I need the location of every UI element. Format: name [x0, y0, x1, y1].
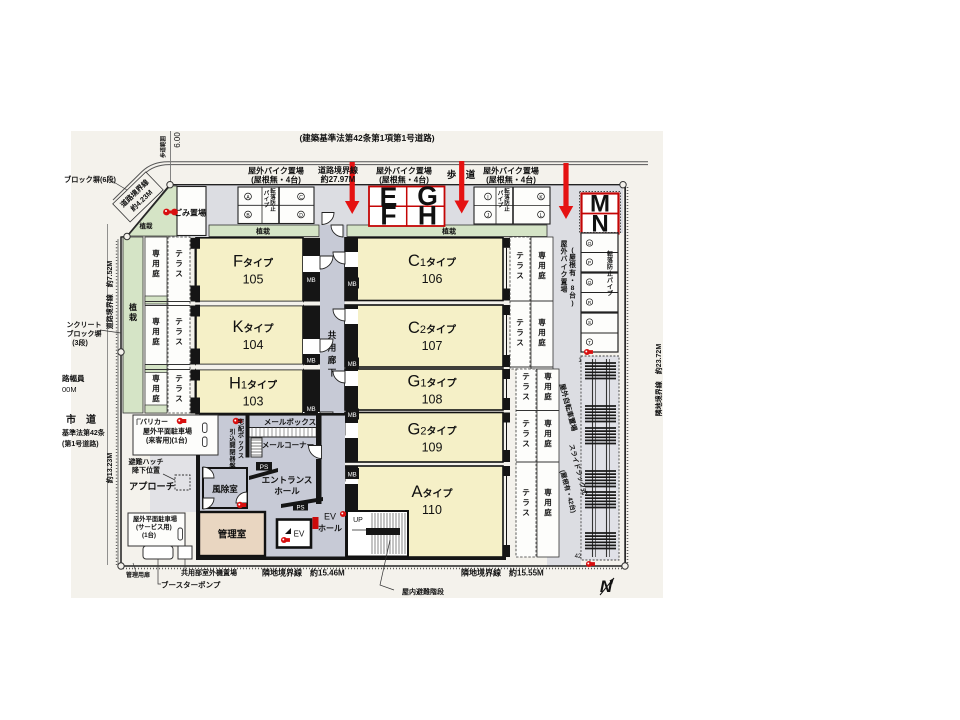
svg-text:ホール: ホール [274, 486, 300, 496]
svg-text:O: O [588, 241, 592, 247]
svg-text:メールボックス: メールボックス [264, 417, 316, 427]
svg-text:107: 107 [422, 339, 443, 353]
svg-text:PS: PS [260, 464, 269, 471]
svg-text:(屋根無・4台): (屋根無・4台) [251, 175, 301, 185]
svg-text:隣地境界線 約23.72M: 隣地境界線 約23.72M [654, 344, 663, 417]
svg-text:H: H [418, 201, 437, 231]
svg-text:約13.23M: 約13.23M [105, 453, 114, 484]
svg-text:屋外バイク置場: 屋外バイク置場 [561, 239, 568, 294]
svg-text:植栽: 植栽 [139, 221, 154, 230]
svg-text:テラス: テラス [175, 317, 183, 346]
svg-text:テラス: テラス [522, 419, 530, 448]
svg-text:路幅員: 路幅員 [62, 373, 85, 383]
svg-text:バリカー: バリカー [140, 418, 168, 426]
svg-text:UP: UP [353, 517, 363, 524]
svg-text:(屋根有・8台): (屋根有・8台) [569, 247, 576, 307]
svg-text:屋外バイク置場: 屋外バイク置場 [248, 166, 304, 176]
svg-text:隣地境界線 約15.46M: 隣地境界線 約15.46M [262, 568, 345, 578]
svg-text:風除室: 風除室 [212, 484, 238, 494]
svg-text:テラス: テラス [516, 251, 524, 280]
svg-text:管理室: 管理室 [218, 529, 247, 541]
svg-text:テラス: テラス [175, 374, 183, 403]
svg-text:転落防止: 転落防止 [270, 187, 276, 213]
svg-text:専用庭: 専用庭 [152, 316, 160, 346]
svg-text:専用庭: 専用庭 [544, 371, 552, 401]
svg-text:MB: MB [307, 358, 316, 364]
svg-text:パイプ: パイプ [264, 189, 270, 209]
svg-text:専用庭: 専用庭 [152, 248, 160, 278]
svg-text:ンクリート: ンクリート [67, 320, 102, 329]
svg-text:管理用扉: 管理用扉 [126, 571, 150, 579]
svg-text:基準法第42条: 基準法第42条 [61, 428, 106, 437]
svg-text:L: L [540, 213, 543, 219]
svg-text:S: S [588, 320, 591, 326]
svg-text:屋外平面駐車場: 屋外平面駐車場 [133, 514, 178, 523]
svg-text:植栽: 植栽 [255, 227, 270, 236]
svg-text:Q: Q [588, 280, 592, 286]
svg-text:テラス: テラス [522, 372, 530, 401]
svg-text:ホール: ホール [318, 524, 342, 533]
svg-text:I: I [487, 195, 488, 201]
svg-text:(屋根無・4台): (屋根無・4台) [379, 175, 429, 185]
svg-text:転落防止パイプ: 転落防止パイプ [607, 250, 614, 298]
svg-text:109: 109 [422, 440, 443, 454]
svg-text:T: T [588, 340, 591, 346]
svg-text:屋内避難階段: 屋内避難階段 [402, 587, 444, 596]
svg-text:転落防止: 転落防止 [504, 187, 510, 213]
svg-text:専用庭: 専用庭 [544, 487, 552, 517]
svg-text:市 道: 市 道 [66, 413, 96, 426]
svg-text:(第1号道路): (第1号道路) [62, 439, 99, 448]
svg-text:パイプ: パイプ [498, 189, 504, 209]
svg-text:00M: 00M [62, 385, 77, 394]
svg-text:MB: MB [307, 278, 316, 284]
svg-text:歩道範囲: 歩道範囲 [159, 136, 167, 159]
svg-text:道路境界線: 道路境界線 [318, 165, 358, 175]
svg-text:宅配ボックス: 宅配ボックス [238, 418, 245, 460]
svg-text:テラス: テラス [175, 249, 183, 278]
svg-text:ごみ置場: ごみ置場 [174, 208, 206, 218]
svg-text:専用庭: 専用庭 [544, 418, 552, 448]
svg-text:104: 104 [243, 338, 264, 352]
svg-text:(サービス用): (サービス用) [136, 522, 172, 531]
svg-text:専用庭: 専用庭 [152, 373, 160, 403]
svg-text:隣地境界線 約15.55M: 隣地境界線 約15.55M [461, 568, 544, 578]
svg-text:F: F [380, 201, 396, 231]
svg-text:EV: EV [294, 530, 305, 539]
svg-text:道路境界線 約7.52M: 道路境界線 約7.52M [105, 261, 114, 330]
svg-text:108: 108 [422, 393, 443, 407]
svg-text:6.00: 6.00 [173, 132, 182, 148]
svg-text:MB: MB [348, 413, 357, 419]
svg-text:110: 110 [422, 503, 442, 517]
svg-text:屋外バイク置場: 屋外バイク置場 [483, 166, 539, 176]
svg-text:42: 42 [575, 554, 582, 560]
svg-text:EV: EV [324, 512, 336, 522]
svg-text:屋外バイク置場: 屋外バイク置場 [376, 166, 432, 176]
svg-text:約27.97M: 約27.97M [321, 174, 356, 184]
svg-text:植栽: 植栽 [441, 227, 456, 236]
svg-text:(3段): (3段) [72, 338, 88, 347]
svg-text:PS: PS [296, 506, 304, 512]
svg-text:アプローチ: アプローチ [129, 481, 175, 492]
svg-text:R: R [588, 300, 592, 306]
svg-text:(1台): (1台) [142, 530, 156, 539]
svg-text:歩 道: 歩 道 [447, 169, 476, 181]
svg-text:降下位置: 降下位置 [132, 466, 160, 475]
svg-text:(屋根無・4台): (屋根無・4台) [486, 175, 536, 185]
svg-text:105: 105 [243, 273, 264, 287]
svg-text:テラス: テラス [522, 488, 530, 517]
svg-text:MB: MB [348, 472, 357, 478]
svg-text:MB: MB [307, 407, 316, 413]
svg-text:エントランス: エントランス [262, 475, 313, 485]
svg-text:(建築基準法第42条第1項第1号道路): (建築基準法第42条第1項第1号道路) [299, 133, 434, 143]
svg-text:共用部室外機置場: 共用部室外機置場 [181, 568, 237, 577]
svg-text:テラス: テラス [516, 318, 524, 347]
svg-text:専用庭: 専用庭 [538, 317, 546, 347]
svg-text:引込開閉器盤: 引込開閉器盤 [228, 428, 236, 470]
svg-text:C: C [299, 195, 303, 201]
svg-text:屋外平面駐車場: 屋外平面駐車場 [143, 427, 192, 436]
svg-text:専用庭: 専用庭 [538, 250, 546, 280]
svg-text:メールコーナー: メールコーナー [262, 441, 314, 450]
svg-text:避難ハッチ: 避難ハッチ [128, 457, 164, 466]
svg-text:106: 106 [422, 272, 443, 286]
svg-text:(来客用)(1台): (来客用)(1台) [146, 436, 187, 445]
svg-text:D: D [299, 213, 303, 219]
svg-text:103: 103 [243, 395, 264, 409]
svg-text:MB: MB [348, 362, 357, 368]
svg-text:P: P [588, 260, 591, 266]
svg-text:ブロック塀(6段): ブロック塀(6段) [64, 175, 117, 184]
svg-text:ブロック塀: ブロック塀 [67, 329, 102, 338]
svg-text:MB: MB [348, 282, 357, 288]
svg-text:ブースターポンプ: ブースターポンプ [161, 580, 221, 590]
